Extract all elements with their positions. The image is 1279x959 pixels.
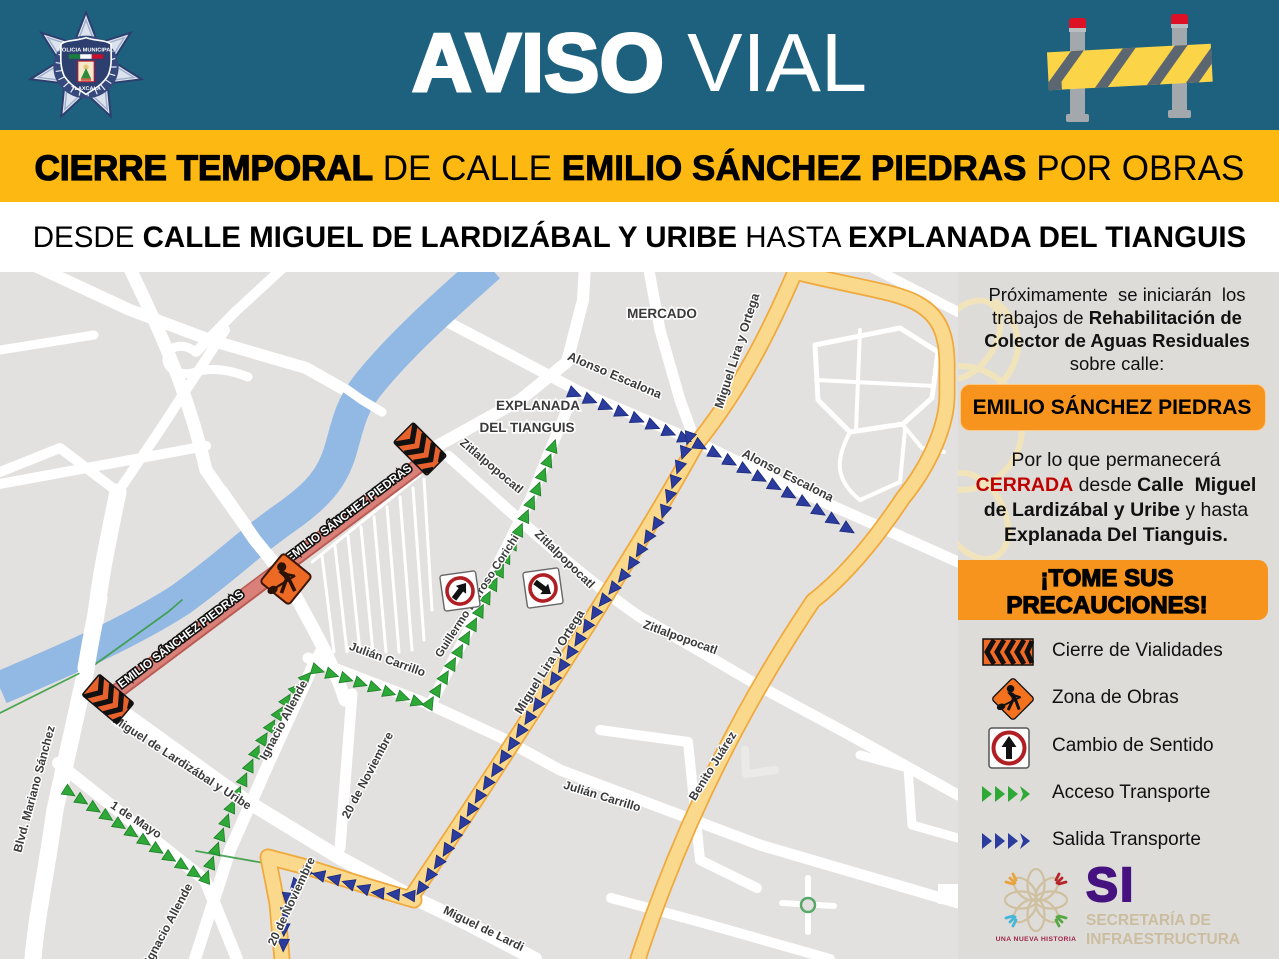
svg-text:MERCADO: MERCADO bbox=[627, 306, 697, 321]
svg-text:DEL TIANGUIS: DEL TIANGUIS bbox=[479, 420, 574, 435]
svg-text:EXPLANADA: EXPLANADA bbox=[496, 398, 580, 413]
